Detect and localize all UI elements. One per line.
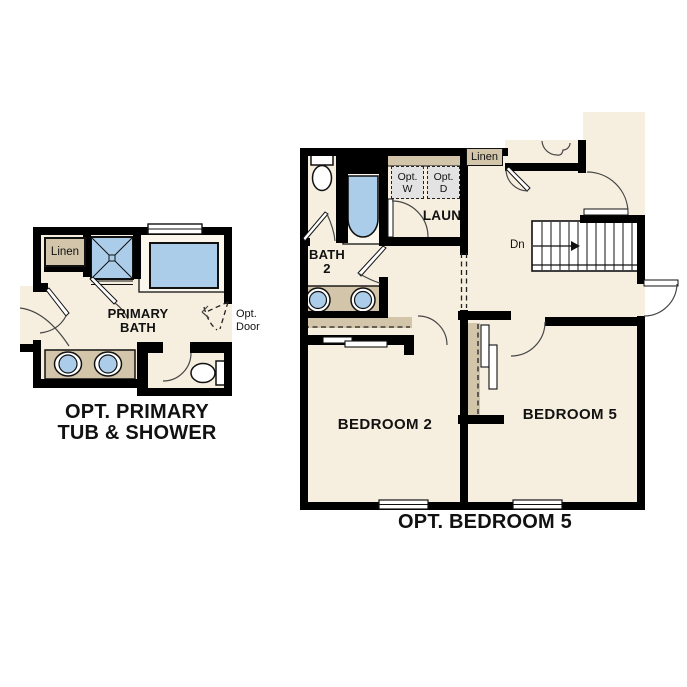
bath2-vanity [302,286,382,313]
left-plan-toilet [191,361,227,385]
floor-plan-page: Linen PRIMARY BATH Opt. Door OPT. PRIMAR… [0,0,687,687]
stairs [532,221,643,271]
opt-washer-box: Opt. W [391,166,424,199]
left-linen-label: Linen [51,246,79,258]
bath2-room-label: BATH 2 [309,248,345,276]
right-linen-label: Linen [471,151,498,163]
floor-plan-drawing [0,0,687,687]
left-plan-caption: OPT. PRIMARY TUB & SHOWER [57,402,216,444]
left-plan-vanity [45,350,135,379]
primary-bath-room-label: PRIMARY BATH [108,307,169,335]
left-plan-window [148,224,202,234]
left-plan-shower [91,237,133,285]
right-plan-caption: OPT. BEDROOM 5 [398,512,572,533]
stairs-dn-label: Dn [510,239,525,252]
left-linen-closet: Linen [44,237,86,267]
left-plan-tub [139,234,231,292]
bath2-toilet [311,152,333,191]
right-plan-opt-bedroom5 [300,112,678,510]
opt-dryer-box: Opt. D [427,166,460,199]
bedroom2-label: BEDROOM 2 [338,416,432,433]
bedroom5-label: BEDROOM 5 [523,406,617,423]
opt-door-label: Opt. Door [236,308,260,334]
laundry-room-label: LAUN [423,209,461,223]
right-linen-closet: Linen [466,148,503,166]
bath2-tub [343,170,382,244]
